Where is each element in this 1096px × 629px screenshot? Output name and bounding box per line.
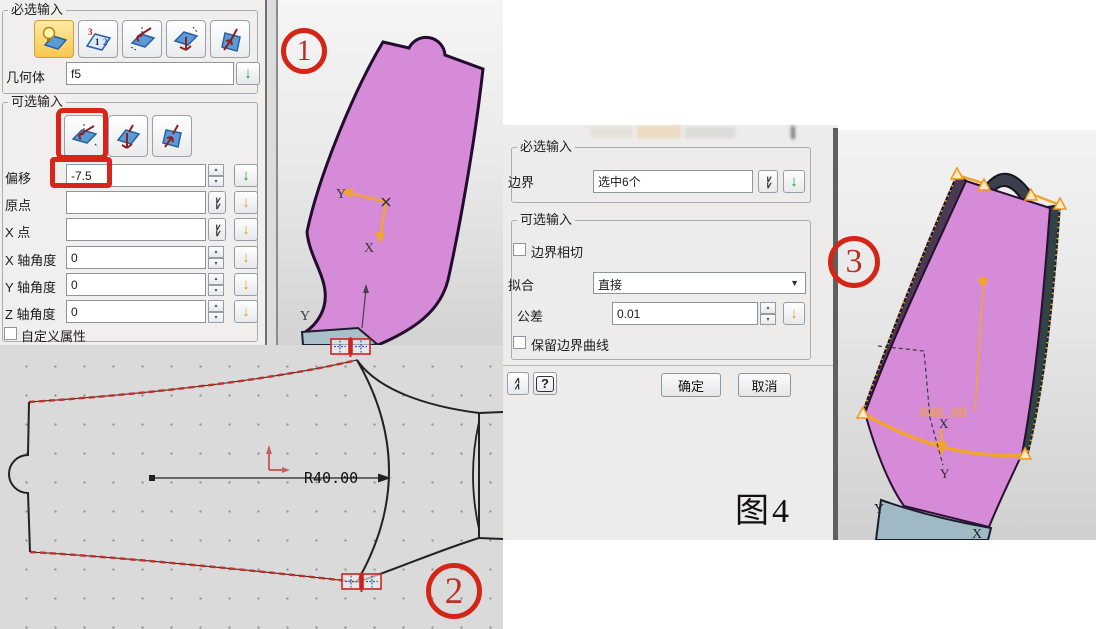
y-angle-apply-button[interactable]: ↓ — [234, 273, 258, 296]
csys-x-axis-y-axis-button[interactable] — [122, 20, 162, 58]
csys-origin-xpoint-button[interactable]: 3 1 2 — [78, 20, 118, 58]
dimension-origin-marker — [149, 475, 155, 481]
ghost-toolbar-fragment — [637, 126, 681, 138]
selected-bottom-curve — [30, 552, 357, 582]
yellow-down-arrow-icon: ↓ — [242, 222, 250, 237]
y-angle-input[interactable] — [66, 273, 206, 296]
double-chevron-down-icon: ∨∨ — [765, 176, 772, 188]
z-angle-apply-button[interactable]: ↓ — [234, 300, 258, 323]
origin-input[interactable] — [66, 191, 206, 214]
axis-x-label: X — [939, 416, 949, 431]
csys-arrow-plane-icon — [127, 25, 157, 53]
annotation-box-offset-value — [50, 157, 112, 188]
spinner-up-icon[interactable]: ▴ — [208, 164, 224, 176]
double-chevron-up-icon: ∨∨ — [515, 378, 522, 390]
geometry-apply-button[interactable]: ↓ — [236, 62, 260, 85]
selected-top-curve — [29, 360, 357, 402]
tolerance-apply-button[interactable]: ↓ — [783, 302, 805, 325]
keep-boundary-checkbox[interactable] — [513, 336, 526, 349]
collapse-dialog-button[interactable]: ∨∨ — [507, 372, 529, 395]
y-angle-label: Y 轴角度 — [5, 277, 56, 296]
csys-rotate-icon — [113, 122, 143, 150]
x-point-expand-button[interactable]: ∨∨ — [208, 218, 226, 241]
fit-dropdown-value: 直接 — [598, 278, 622, 292]
help-button[interactable]: ? — [533, 372, 557, 395]
sketch-csys — [269, 452, 284, 470]
sketch-csys-y-arrow — [266, 445, 272, 454]
boundary-expand-button[interactable]: ∨∨ — [758, 170, 778, 193]
boundary-tangent-checkbox[interactable] — [513, 243, 526, 256]
axis-y-label: Y — [940, 466, 950, 481]
x-point-apply-button[interactable]: ↓ — [234, 218, 258, 241]
geometry-input[interactable] — [66, 62, 234, 85]
profile-left-edge — [9, 402, 30, 552]
origin-apply-button[interactable]: ↓ — [234, 191, 258, 214]
green-down-arrow-icon: ↓ — [244, 66, 252, 81]
trailing-piece-edges — [479, 412, 503, 539]
x-angle-apply-button[interactable]: ↓ — [234, 246, 258, 269]
geometry-label: 几何体 — [6, 67, 45, 86]
profile-r40-arc — [357, 360, 389, 582]
svg-text:2: 2 — [103, 37, 108, 47]
radius-center-handle[interactable] — [979, 277, 988, 286]
annotation-badge-2: 2 — [426, 563, 482, 619]
x-point-label: X 点 — [5, 222, 30, 241]
base-x-label: X — [972, 527, 982, 540]
dof-marker-top — [330, 337, 372, 362]
csys-z-axis-button[interactable] — [166, 20, 206, 58]
green-down-arrow-icon: ↓ — [242, 168, 250, 183]
offset-label: 偏移 — [5, 168, 31, 187]
x-angle-input[interactable] — [66, 246, 206, 269]
fit-label: 拟合 — [508, 275, 534, 294]
required-input-group-label: 必选输入 — [8, 3, 66, 17]
csys-tilted-plane-icon — [215, 25, 245, 53]
dropdown-arrow-icon: ▼ — [790, 278, 799, 288]
yellow-down-arrow-icon: ↓ — [242, 250, 250, 265]
ghost-toolbar-fragment — [791, 126, 795, 139]
sketch-csys-x-arrow — [282, 467, 290, 473]
boundary-input[interactable] — [593, 170, 753, 193]
tolerance-label: 公差 — [517, 306, 543, 325]
z-angle-label: Z 轴角度 — [5, 304, 56, 323]
radius-dimension-text: R40.00 — [304, 469, 358, 487]
boundary-apply-button[interactable]: ↓ — [783, 170, 805, 193]
dof-marker-bottom — [341, 572, 383, 597]
axis-y-label: Y — [336, 187, 346, 202]
blade-boundary-graphic: R40.00 X Y Y X — [838, 130, 1096, 540]
x-angle-spinner[interactable]: ▴▾ — [208, 246, 224, 269]
yellow-down-arrow-icon: ↓ — [242, 277, 250, 292]
blade-front-face — [865, 181, 1050, 527]
x-point-input[interactable] — [66, 218, 206, 241]
z-angle-spinner[interactable]: ▴▾ — [208, 300, 224, 323]
custom-attributes-checkbox[interactable] — [4, 327, 17, 340]
required-input-group-label: 必选输入 — [517, 140, 575, 154]
blade-body — [304, 37, 483, 345]
ghost-toolbar-fragment — [685, 127, 735, 138]
double-chevron-down-icon: ∨∨ — [214, 224, 221, 236]
yellow-down-arrow-icon: ↓ — [790, 306, 798, 321]
ok-button[interactable]: 确定 — [661, 373, 721, 397]
boundary-label: 边界 — [508, 172, 534, 191]
panel-divider — [265, 0, 278, 345]
optional-input-group-label: 可选输入 — [517, 213, 575, 227]
y-angle-spinner[interactable]: ▴▾ — [208, 273, 224, 296]
double-chevron-down-icon: ∨∨ — [214, 197, 221, 209]
base-y-label: Y — [874, 502, 884, 517]
numbered-plane-icon: 3 1 2 — [83, 25, 113, 53]
svg-text:3: 3 — [88, 27, 93, 37]
spinner-down-icon[interactable]: ▾ — [208, 176, 224, 188]
origin-label: 原点 — [5, 195, 31, 214]
yellow-down-arrow-icon: ↓ — [242, 195, 250, 210]
boundary-fit-dialog: 必选输入 边界 ∨∨ ↓ 可选输入 边界相切 拟合 直接 ▼ 公差 ▴▾ ↓ 保… — [503, 125, 838, 540]
figure-caption: 图4 — [735, 483, 792, 532]
csys-mirror-icon — [157, 122, 187, 150]
svg-text:1: 1 — [95, 37, 100, 47]
csys-dynamic-button[interactable] — [210, 20, 250, 58]
yellow-down-arrow-icon: ↓ — [242, 304, 250, 319]
annotation-badge-3: 3 — [828, 236, 880, 288]
offset-apply-button[interactable]: ↓ — [234, 164, 258, 187]
view-3d-blade-boundary[interactable]: R40.00 X Y Y X — [838, 130, 1096, 540]
origin-expand-button[interactable]: ∨∨ — [208, 191, 226, 214]
custom-attributes-label: 自定义属性 — [21, 326, 86, 345]
screenshot-root: 必选输入 3 1 2 — [0, 0, 1096, 629]
csys-type-inferred-button[interactable] — [34, 20, 74, 58]
green-down-arrow-icon: ↓ — [790, 174, 798, 189]
mirror-csys-button[interactable] — [152, 115, 192, 157]
axis-x-label: X — [364, 241, 374, 256]
csys-plane-z-icon — [171, 25, 201, 53]
annotation-badge-1: 1 — [281, 28, 327, 74]
x-angle-label: X 轴角度 — [5, 250, 56, 269]
offset-spinner[interactable]: ▴ ▾ — [208, 164, 224, 187]
fillet-curves — [357, 360, 479, 582]
annotation-box-offset-icon — [56, 108, 108, 160]
keep-boundary-label: 保留边界曲线 — [531, 335, 609, 354]
dialog-separator — [503, 365, 838, 366]
help-icon: ? — [536, 376, 554, 392]
rotate-csys-z-button[interactable] — [108, 115, 148, 157]
cancel-button[interactable]: 取消 — [738, 373, 791, 397]
datum-csys-dialog: 必选输入 3 1 2 — [0, 0, 265, 345]
fit-dropdown[interactable]: 直接 ▼ — [593, 272, 806, 294]
tolerance-input[interactable] — [612, 302, 758, 325]
lightbulb-plane-icon — [39, 25, 69, 53]
boundary-tangent-label: 边界相切 — [531, 242, 583, 261]
tolerance-spinner[interactable]: ▴▾ — [760, 302, 776, 325]
optional-input-group-label: 可选输入 — [8, 95, 66, 109]
ghost-toolbar-fragment — [591, 127, 633, 138]
axis-y2-label: Y — [300, 309, 310, 324]
z-angle-input[interactable] — [66, 300, 206, 323]
